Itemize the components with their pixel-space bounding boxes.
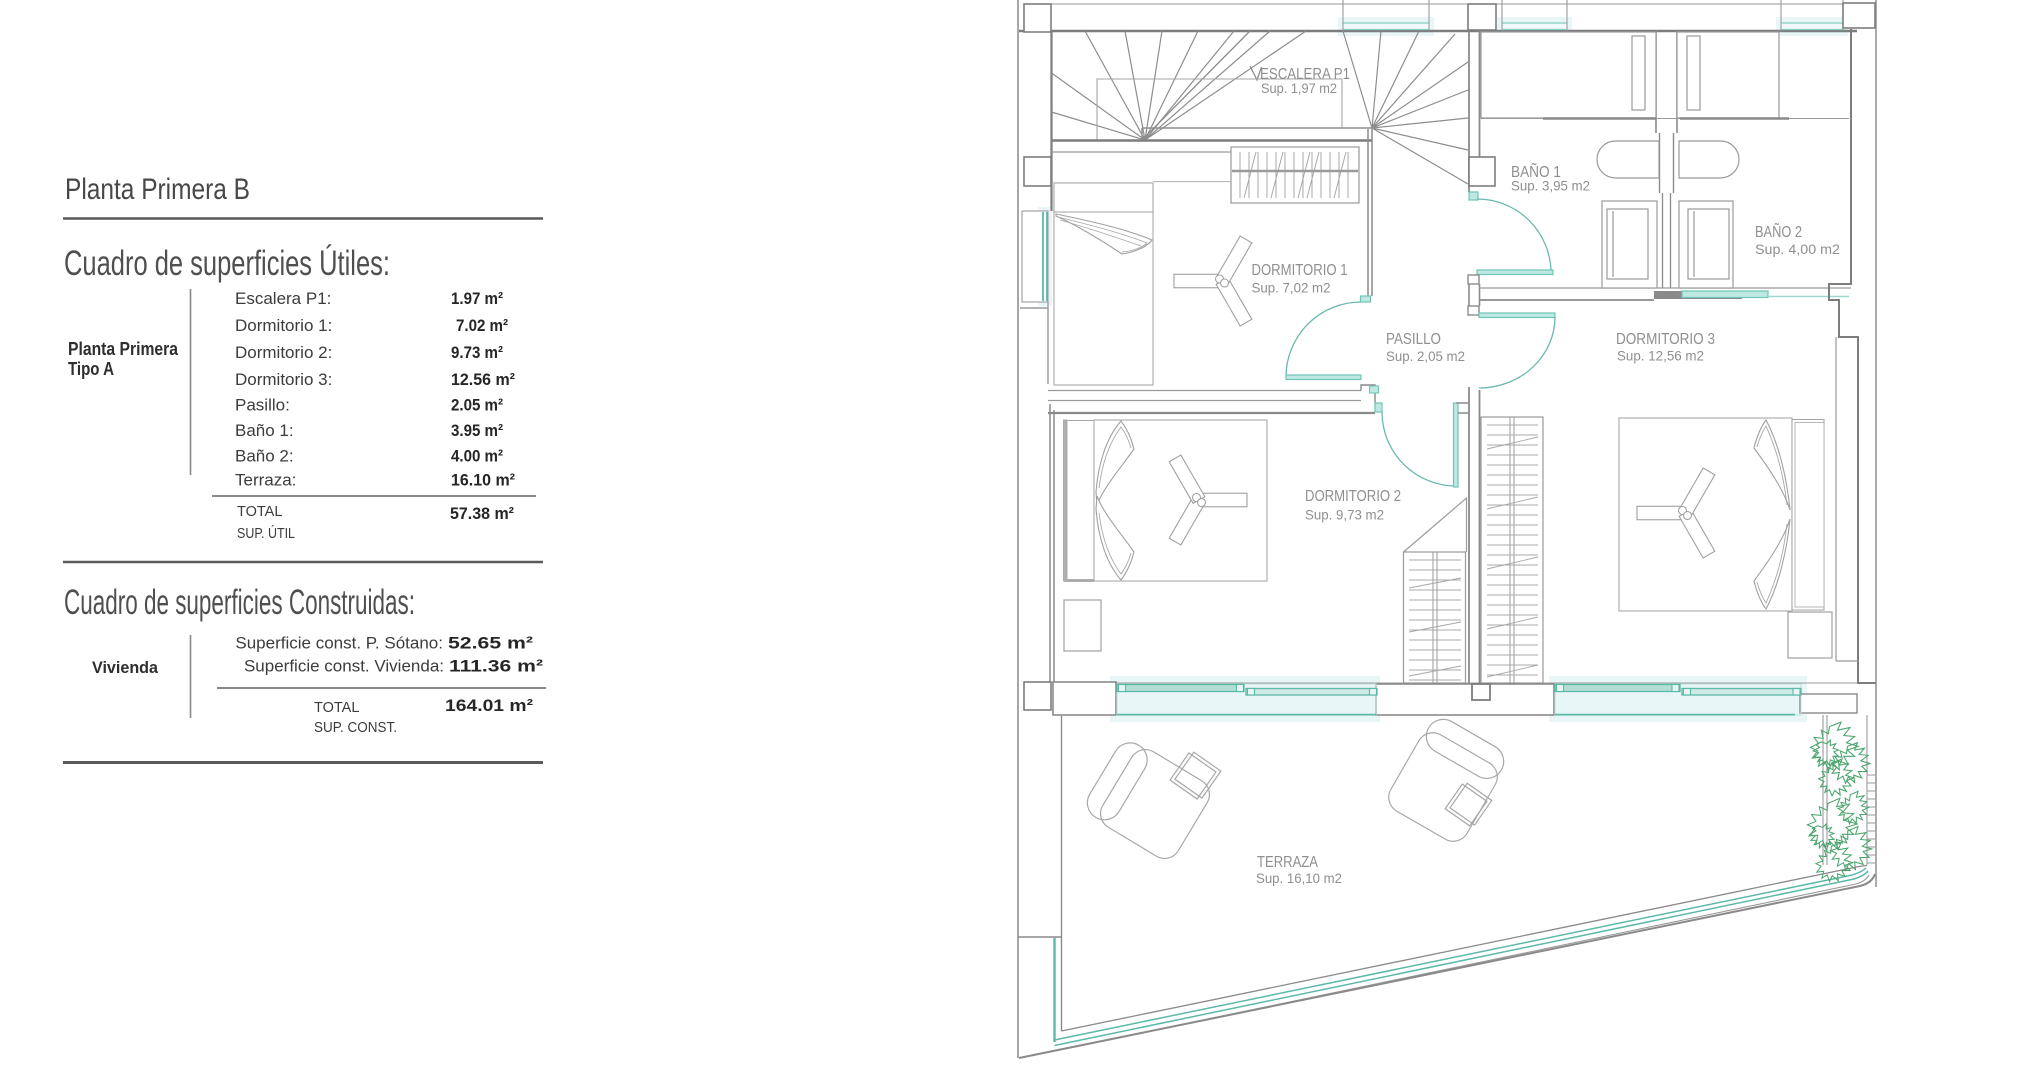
svg-text:TOTAL: TOTAL	[237, 504, 282, 520]
svg-text:Sup. 9,73 m2: Sup. 9,73 m2	[1305, 507, 1384, 523]
svg-text:Planta Primera B: Planta Primera B	[65, 173, 250, 206]
svg-text:12.56 m²: 12.56 m²	[451, 370, 515, 389]
svg-text:SUP. CONST.: SUP. CONST.	[314, 720, 397, 736]
svg-text:Baño 1:: Baño 1:	[235, 421, 294, 440]
svg-text:57.38 m²: 57.38 m²	[450, 504, 514, 523]
svg-text:Pasillo:: Pasillo:	[235, 396, 290, 415]
svg-text:Tipo A: Tipo A	[68, 359, 114, 379]
svg-text:TERRAZA: TERRAZA	[1257, 854, 1318, 871]
svg-text:16.10 m²: 16.10 m²	[451, 471, 515, 490]
svg-text:Escalera P1:: Escalera P1:	[235, 289, 331, 308]
svg-text:Cuadro de superficies Útiles:: Cuadro de superficies Útiles:	[64, 244, 390, 283]
svg-text:Cuadro de superficies Construi: Cuadro de superficies Construidas:	[64, 583, 415, 622]
svg-text:Dormitorio 2:: Dormitorio 2:	[235, 343, 332, 362]
svg-text:DORMITORIO 1: DORMITORIO 1	[1252, 262, 1348, 279]
svg-text:Vivienda: Vivienda	[92, 658, 159, 677]
svg-text:Superficie const. Vivienda:: Superficie const. Vivienda:	[244, 657, 444, 676]
svg-text:4.00 m²: 4.00 m²	[451, 447, 503, 466]
svg-text:2.05 m²: 2.05 m²	[451, 396, 503, 415]
svg-text:Sup. 3,95 m2: Sup. 3,95 m2	[1511, 178, 1590, 194]
svg-text:DORMITORIO 2: DORMITORIO 2	[1305, 488, 1401, 505]
svg-text:Terraza:: Terraza:	[235, 471, 296, 490]
svg-text:PASILLO: PASILLO	[1386, 331, 1441, 348]
svg-text:3.95 m²: 3.95 m²	[451, 421, 503, 440]
svg-text:SUP. ÚTIL: SUP. ÚTIL	[237, 525, 295, 542]
svg-text:DORMITORIO 3: DORMITORIO 3	[1616, 331, 1715, 348]
svg-text:52.65 m²: 52.65 m²	[448, 634, 533, 653]
svg-text:Dormitorio 3:: Dormitorio 3:	[235, 370, 332, 389]
svg-text:Sup. 4,00 m2: Sup. 4,00 m2	[1755, 241, 1840, 257]
svg-text:7.02 m²: 7.02 m²	[456, 316, 508, 335]
svg-text:Superficie const. P. Sótano:: Superficie const. P. Sótano:	[235, 634, 443, 653]
svg-text:Sup. 2,05 m2: Sup. 2,05 m2	[1386, 348, 1465, 364]
svg-text:Sup. 12,56 m2: Sup. 12,56 m2	[1617, 348, 1704, 364]
svg-text:9.73 m²: 9.73 m²	[451, 343, 503, 362]
svg-text:Sup. 7,02 m2: Sup. 7,02 m2	[1252, 280, 1331, 296]
svg-text:Sup. 1,97 m2: Sup. 1,97 m2	[1261, 80, 1337, 96]
svg-text:Sup. 16,10 m2: Sup. 16,10 m2	[1256, 870, 1342, 886]
svg-text:Baño 2:: Baño 2:	[235, 447, 294, 466]
svg-text:TOTAL: TOTAL	[314, 700, 359, 716]
svg-text:BAÑO 2: BAÑO 2	[1755, 221, 1802, 241]
svg-text:111.36 m²: 111.36 m²	[449, 657, 543, 676]
svg-text:1.97 m²: 1.97 m²	[451, 289, 503, 308]
svg-text:164.01 m²: 164.01 m²	[445, 696, 533, 715]
svg-text:Dormitorio 1:: Dormitorio 1:	[235, 316, 332, 335]
svg-text:Planta Primera: Planta Primera	[68, 339, 179, 359]
